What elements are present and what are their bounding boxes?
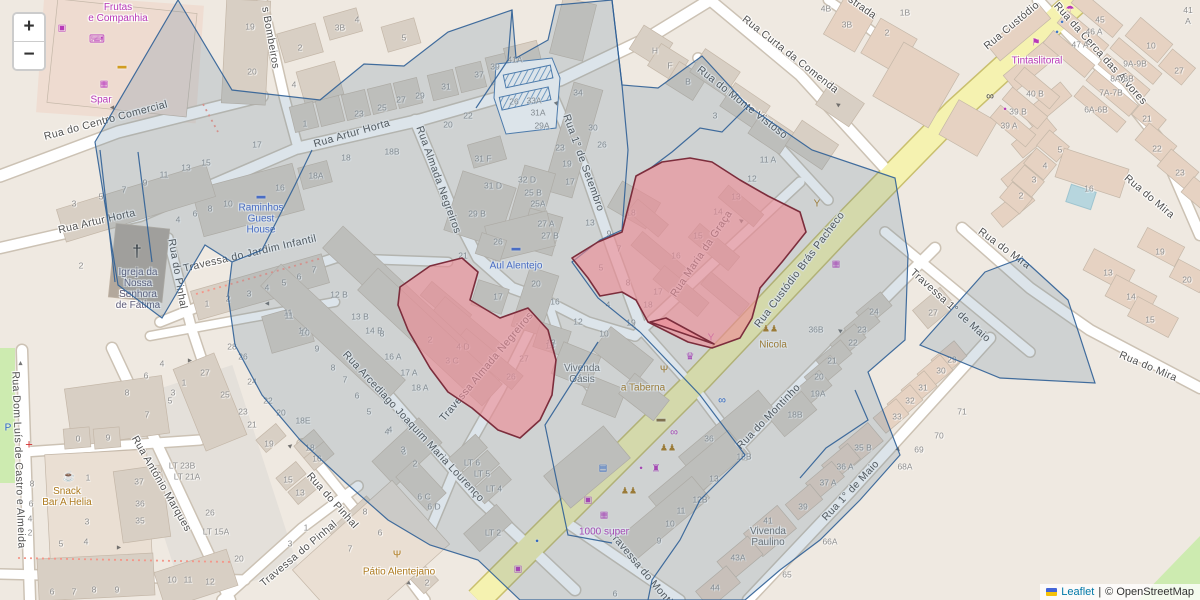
house-number: 6	[297, 272, 302, 283]
house-number: LT 4	[486, 484, 502, 495]
house-number: LT 5	[474, 469, 490, 480]
house-number: 13	[731, 192, 740, 203]
house-number: 6 D	[427, 502, 440, 513]
street-label: Travessa 1° de Maio	[908, 267, 992, 345]
house-number: 17	[493, 292, 502, 303]
house-number: 9	[607, 229, 612, 240]
house-number: 16	[312, 454, 321, 465]
house-number: 4	[1043, 161, 1048, 172]
house-number: 18	[305, 443, 314, 454]
house-number: 43A	[730, 553, 745, 564]
house-number: 20	[234, 554, 243, 565]
house-number: 7	[312, 265, 317, 276]
house-number: 15	[1145, 315, 1154, 326]
house-number: 17	[565, 177, 574, 188]
house-number: 31 D	[484, 181, 502, 192]
street-label: Rua Artur Horta	[313, 118, 392, 150]
house-number: 41	[763, 516, 772, 527]
house-number: 23	[1175, 168, 1184, 179]
house-number: 6	[355, 391, 360, 402]
house-number: 24	[869, 307, 878, 318]
house-number: 4	[28, 514, 33, 525]
bar-icon: Y	[814, 199, 821, 210]
street-label: Rua do Mira	[976, 226, 1032, 271]
street-label: Travessa Almada Negreiros	[438, 310, 536, 424]
poi-label: Tintaslitoral	[1012, 56, 1063, 67]
house-number: 36	[135, 499, 144, 510]
house-number: 18B	[787, 410, 802, 421]
street-label: Rua 1° de Setembro	[560, 113, 605, 213]
street-label: Rua Custódio Brás Pacheco	[753, 210, 847, 330]
house-number: 10	[300, 328, 309, 339]
house-number: 10	[665, 519, 674, 530]
house-number: 0	[76, 434, 81, 445]
house-number: 36B	[808, 325, 823, 336]
house-number: 2	[425, 578, 430, 589]
house-number: 3 C	[445, 356, 458, 367]
house-number: 1	[182, 378, 187, 389]
house-number: 19A	[810, 389, 825, 400]
house-number: 15	[693, 231, 702, 242]
zoom-out-button[interactable]: −	[14, 41, 44, 69]
house-number: 9	[106, 433, 111, 444]
house-number: LT 15A	[203, 527, 230, 538]
house-number: 16	[671, 251, 680, 262]
house-number: 19	[626, 318, 635, 329]
street-label: Rua do Mira	[1118, 350, 1179, 384]
street-label: Travessa do Pinhal	[258, 519, 339, 590]
street-label: Rua do Centro Comercial	[43, 99, 169, 143]
house-number: 4	[606, 300, 611, 311]
house-number: 10	[1146, 41, 1155, 52]
house-number: 5	[59, 539, 64, 550]
house-number: 13	[585, 218, 594, 229]
house-number: 44	[710, 583, 719, 594]
house-number: 11	[284, 308, 293, 319]
house-number: 13	[295, 488, 304, 499]
street-label: Rua Dom Luís de Castro e Almeida	[9, 371, 26, 549]
restaurant-icon: Ψ	[393, 550, 401, 561]
house-number: 7	[348, 544, 353, 555]
house-number: 29 B	[468, 209, 486, 220]
house-number: 3	[1032, 175, 1037, 186]
dot-icon: ●	[1055, 28, 1059, 39]
house-number: 14 B	[365, 326, 383, 337]
street-label: Rua do Pinhal	[165, 238, 188, 310]
house-number: 7	[343, 375, 348, 386]
house-number: 32 D	[518, 175, 536, 186]
house-number: 2	[226, 294, 231, 305]
house-number: 31	[918, 383, 927, 394]
house-number: 25	[220, 390, 229, 401]
house-number: 71	[957, 407, 966, 418]
zoom-in-button[interactable]: +	[14, 14, 44, 41]
computer-icon: ⌨	[89, 35, 105, 46]
house-number: 35	[135, 516, 144, 527]
house-number: 2	[79, 261, 84, 272]
house-number: 4	[292, 80, 297, 91]
house-number: 20	[276, 408, 285, 419]
house-number: 4	[385, 427, 390, 438]
house-number: 41A	[507, 55, 522, 66]
house-number: 10	[167, 575, 176, 586]
house-number: 27 A	[537, 219, 554, 230]
poi-label: Igreja da Nossa Senhora de Fátima	[116, 267, 160, 311]
house-number: LT 23B	[169, 461, 196, 472]
house-number: 11	[184, 575, 193, 586]
house-number: 9A-9B	[1123, 59, 1147, 70]
house-number: 3	[85, 517, 90, 528]
poi-label: Raminhos Guest House	[238, 203, 283, 236]
house-number: 3	[288, 539, 293, 550]
bag-icon: ▣	[514, 564, 523, 575]
atm-icon: ▤	[599, 463, 608, 474]
bed-icon: ▬	[257, 191, 266, 202]
house-number: 19	[562, 159, 571, 170]
poi-label: Frutas e Companhia	[88, 2, 147, 24]
oneway-arrow-icon: ►	[735, 214, 747, 227]
house-number: 40 B	[1026, 89, 1044, 100]
ukraine-flag-icon	[1046, 588, 1057, 596]
house-number: 8A-8B	[1110, 74, 1134, 85]
house-number: 18	[626, 208, 635, 219]
house-number: 23	[238, 407, 247, 418]
house-number: 25A	[530, 199, 545, 210]
house-number: 1	[304, 523, 309, 534]
house-number: 10	[223, 199, 232, 210]
house-number: 3	[171, 388, 176, 399]
house-number: LT 6	[464, 458, 480, 469]
pharmacy-icon: +	[25, 439, 33, 450]
street-label: Rua António Marques	[129, 434, 193, 534]
house-number: 33A	[526, 96, 541, 107]
street-label: s Bombeiros	[259, 6, 281, 70]
house-number: 26	[238, 352, 247, 363]
house-number: 3B	[335, 23, 345, 34]
house-number: 47 A	[1071, 40, 1088, 51]
oneway-arrow-icon: ►	[834, 324, 846, 337]
house-number: 2	[28, 528, 33, 539]
house-number: 29A	[534, 121, 549, 132]
house-number: 37	[474, 70, 483, 81]
oneway-arrow-icon: ►	[16, 360, 27, 367]
house-number: 3	[247, 289, 252, 300]
house-number: 6	[50, 587, 55, 598]
house-number: 20	[814, 372, 823, 383]
street-label: Rua Curta da Comenda	[740, 14, 840, 96]
house-number: 20	[443, 120, 452, 131]
house-number: 6	[613, 589, 618, 600]
house-number: 39 A	[1000, 121, 1017, 132]
house-number: 22	[1152, 144, 1161, 155]
zoom-control: + −	[12, 12, 46, 71]
optician-icon: ∞	[986, 92, 994, 103]
house-number: 20	[247, 67, 256, 78]
restaurant-icon: Ψ	[660, 365, 668, 376]
card-icon: ▬	[118, 61, 127, 72]
street-label: Rua do Monte Vistoso	[695, 64, 789, 141]
house-number: 18	[341, 153, 350, 164]
house-number: 19	[245, 22, 254, 33]
people-icon: ♟♟	[621, 486, 637, 497]
house-number: 23	[857, 325, 866, 336]
house-number: 17	[653, 287, 662, 298]
house-number: 26	[597, 140, 606, 151]
poi-label: 1000 super	[579, 527, 629, 538]
house-number: 12	[747, 174, 756, 185]
house-number: 5	[168, 396, 173, 407]
house-number: 5	[402, 33, 407, 44]
house-number: 18A	[308, 171, 323, 182]
house-number: 11 A	[760, 155, 776, 166]
house-number: 21	[458, 251, 467, 262]
house-number: 2	[1019, 191, 1024, 202]
leaflet-link[interactable]: Leaflet	[1061, 586, 1094, 598]
house-number: 6 C	[417, 492, 430, 503]
house-number: 2	[885, 28, 890, 39]
house-number: 70	[934, 431, 943, 442]
house-number: 4 D	[456, 342, 469, 353]
house-number: 4	[160, 359, 165, 370]
car-icon: ▬	[657, 414, 666, 425]
house-number: 41 A	[1182, 5, 1194, 27]
house-number: 65	[782, 570, 791, 581]
house-number: 26	[509, 97, 518, 108]
house-number: 4	[388, 425, 393, 436]
house-number: 32	[905, 396, 914, 407]
house-number: 27	[200, 368, 209, 379]
street-label: Rua 1° de Maio	[820, 459, 881, 524]
house-number: 37 A	[819, 478, 836, 489]
people-icon: ♟♟	[660, 443, 676, 454]
house-number: 2	[298, 43, 303, 54]
house-number: 13	[709, 474, 718, 485]
house-number: 11	[677, 506, 686, 517]
people-icon: ♟♟	[762, 324, 778, 335]
house-number: 8	[380, 329, 385, 340]
poi-label: Vivenda Paulino	[750, 526, 786, 548]
house-number: 10	[599, 329, 608, 340]
street-label: Rua da Cerca das Árvores	[1051, 1, 1148, 107]
house-number: 27	[928, 308, 937, 319]
house-number: 34	[573, 88, 582, 99]
house-number: 16	[275, 183, 284, 194]
house-number: 36 A	[836, 462, 853, 473]
osm-link[interactable]: © OpenStreetMap	[1105, 586, 1194, 598]
church-cross-icon: †	[132, 246, 141, 257]
house-number: 30	[936, 366, 945, 377]
house-number: H	[652, 46, 658, 57]
house-number: 18E	[295, 416, 310, 427]
house-number: 14	[1126, 292, 1135, 303]
house-number: 26	[493, 237, 502, 248]
oneway-arrow-icon: ►	[892, 444, 905, 457]
house-number: 12 B	[330, 290, 348, 301]
house-number: 39	[490, 62, 499, 73]
dot-icon: ●	[535, 537, 539, 548]
house-number: 21	[1142, 114, 1151, 125]
house-number: 18B	[384, 147, 399, 158]
street-label: Rua do Pinhal	[304, 471, 360, 531]
cafe-icon: ☕	[63, 472, 75, 483]
attribution-bar: Leaflet | © OpenStreetMap	[1040, 584, 1200, 600]
oneway-arrow-icon: ►	[116, 543, 123, 554]
dot-icon: ●	[1060, 18, 1064, 29]
poi-label: Spar	[90, 95, 111, 106]
house-number: 4	[84, 537, 89, 548]
house-number: 4	[355, 15, 360, 26]
street-label: strada	[846, 0, 878, 22]
house-number: 35 B	[854, 443, 872, 454]
paint-shop-icon: ⚑	[1032, 38, 1041, 49]
house-number: 30	[588, 123, 597, 134]
house-number: 39 B	[1009, 107, 1027, 118]
house-number: 7	[145, 410, 150, 421]
house-number: 4	[176, 215, 181, 226]
map-canvas[interactable]: Rua do Centro ComercialRua Artur HortaRu…	[0, 0, 1200, 600]
house-number: 2	[428, 335, 433, 346]
house-number: 7	[72, 587, 77, 598]
house-number: 8	[363, 507, 368, 518]
house-number: 7	[122, 185, 127, 196]
oneway-arrow-icon: ►	[550, 99, 563, 109]
house-number: 5	[1058, 145, 1063, 156]
house-number: 6A-6B	[1084, 105, 1108, 116]
street-label: Rua Artur Horta	[57, 208, 136, 236]
attribution-separator: |	[1098, 586, 1101, 598]
house-number: 7A-7B	[1099, 88, 1123, 99]
bag-icon: ▣	[584, 495, 593, 506]
poi-label: Nicola	[759, 340, 787, 351]
house-number: 1B	[900, 8, 910, 19]
poi-label: Aul Alentejo	[490, 261, 543, 272]
house-number: 1	[205, 299, 210, 310]
house-number: 8	[125, 388, 130, 399]
house-number: 69	[914, 445, 923, 456]
house-number: LT 21A	[174, 472, 201, 483]
house-number: 9	[143, 178, 148, 189]
house-number: 36	[704, 434, 713, 445]
house-number: 11	[285, 311, 294, 322]
house-number: 13 B	[351, 312, 369, 323]
house-number: 68A	[897, 462, 912, 473]
house-number: 6	[378, 528, 383, 539]
street-label: Rua Almada Negreiros	[413, 125, 462, 236]
house-number: 20	[531, 279, 540, 290]
house-number: B	[685, 77, 691, 88]
house-number: 45	[1095, 15, 1104, 26]
house-number: LT 2	[485, 528, 501, 539]
house-number: 5	[99, 192, 104, 203]
house-number: 8	[208, 204, 213, 215]
house-number: 13	[546, 338, 555, 349]
house-number: 22	[263, 396, 272, 407]
parking-icon: P	[5, 423, 12, 434]
house-number: 8	[331, 363, 336, 374]
street-label: Rua Custódio	[982, 0, 1041, 52]
street-label: Travessa do Jardim Infantil	[182, 233, 317, 274]
street-label: Travessa do Montinho	[606, 529, 686, 600]
house-number: 31 F	[474, 154, 491, 165]
house-number: 19	[264, 439, 273, 450]
house-number: 4	[265, 283, 270, 294]
bed-icon: ▬	[512, 243, 521, 254]
house-number: 46 A	[1085, 27, 1102, 38]
house-number: 6	[144, 371, 149, 382]
street-label: Rua Arcediago Joaquim Maria Lourenço	[340, 349, 486, 504]
house-number: 6	[29, 499, 34, 510]
house-number: 15	[201, 158, 210, 169]
house-number: 13	[1103, 268, 1112, 279]
house-number: 7	[617, 244, 622, 255]
house-number: 18	[643, 300, 652, 311]
house-number: 39	[798, 502, 807, 513]
house-number: 16 A	[384, 352, 401, 363]
house-number: 14	[713, 207, 722, 218]
house-number: 16	[550, 297, 559, 308]
house-number: 23	[354, 109, 363, 120]
house-number: 21	[827, 356, 836, 367]
house-number: 3	[72, 199, 77, 210]
house-number: 1	[303, 119, 308, 130]
house-number: F	[667, 61, 672, 72]
house-number: 3B	[842, 20, 852, 31]
house-number: 37	[134, 477, 143, 488]
house-number: 19	[1155, 247, 1164, 258]
house-number: 27	[396, 95, 405, 106]
house-number: 27	[1174, 66, 1183, 77]
house-number: 22	[848, 338, 857, 349]
house-number: 27	[519, 354, 528, 365]
house-number: 8	[626, 278, 631, 289]
house-number: 2	[413, 459, 418, 470]
house-number: 31A	[530, 108, 545, 119]
house-number: 6	[193, 209, 198, 220]
oneway-arrow-icon: ►	[264, 298, 271, 309]
cart-icon: ▦	[832, 259, 841, 270]
house-number: 17	[252, 140, 261, 151]
house-number: 9	[315, 344, 320, 355]
oneway-arrow-icon: ►	[832, 98, 844, 111]
dot-icon: ●	[1003, 105, 1007, 116]
house-number: 13	[545, 341, 554, 352]
house-number: 3	[713, 111, 718, 122]
house-number: 24	[247, 377, 256, 388]
oneway-arrow-icon: ►	[187, 356, 194, 367]
house-number: 18 A	[411, 383, 428, 394]
map-labels: Rua do Centro ComercialRua Artur HortaRu…	[0, 0, 1200, 600]
house-number: 31	[441, 82, 450, 93]
house-number: 23	[555, 143, 564, 154]
house-number: 26	[205, 508, 214, 519]
house-number: 1	[86, 473, 91, 484]
bicycle-icon: ∞	[718, 396, 726, 407]
poi-label: Pátio Alentejano	[363, 567, 435, 578]
house-number: 11	[160, 170, 169, 181]
house-number: 3	[402, 447, 407, 458]
house-number: 12	[573, 317, 582, 328]
oneway-arrow-icon: ►	[109, 102, 116, 113]
house-number: 29	[415, 91, 424, 102]
house-number: 9	[115, 585, 120, 596]
glasses-icon: ∞	[670, 428, 678, 439]
house-number: 5	[599, 263, 604, 274]
laundry-icon: ▣	[58, 23, 67, 34]
street-label: Rua do Mira	[1122, 173, 1176, 221]
wine-icon: Y	[708, 333, 715, 344]
house-number: 27 B	[541, 231, 559, 242]
house-number: 26	[506, 372, 515, 383]
